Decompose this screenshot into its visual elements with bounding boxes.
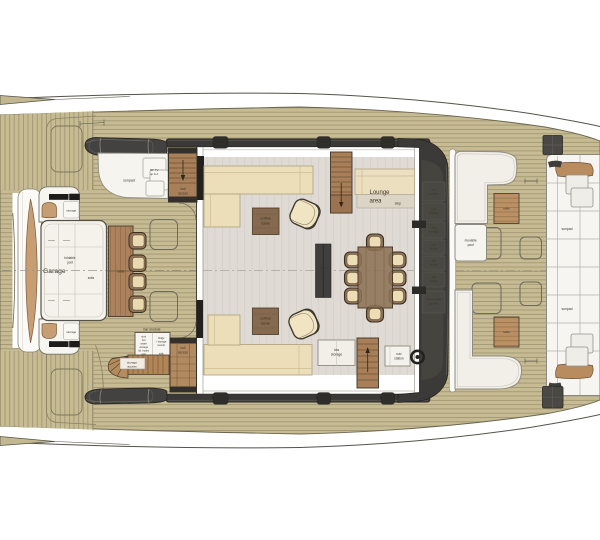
svg-text:movable: movable (465, 239, 477, 243)
svg-text:lid. hydra: lid. hydra (138, 349, 149, 353)
svg-text:locker: locker (430, 263, 438, 267)
svg-text:/ storage: / storage (156, 340, 167, 344)
svg-text:part: part (67, 261, 73, 265)
svg-text:table: table (118, 270, 125, 274)
svg-text:up & d.: up & d. (150, 172, 159, 176)
svg-text:water: water (141, 342, 147, 346)
svg-text:table: table (261, 321, 270, 326)
svg-text:storage: storage (429, 230, 439, 234)
svg-text:station: station (394, 357, 404, 361)
svg-text:locker: locker (430, 247, 438, 251)
svg-text:nav: nav (396, 352, 402, 356)
svg-text:access: access (178, 192, 188, 196)
svg-text:low: low (334, 348, 340, 352)
svg-text:access: access (178, 351, 188, 355)
svg-text:Lounge: Lounge (370, 190, 391, 196)
svg-text:bar module: bar module (144, 328, 161, 332)
svg-text:hull: hull (181, 187, 186, 191)
svg-text:sofa: sofa (88, 276, 95, 280)
svg-text:step: step (395, 202, 402, 206)
svg-text:fridge: fridge (158, 336, 165, 340)
svg-text:foldable: foldable (64, 256, 75, 260)
svg-text:area: area (370, 199, 383, 205)
svg-text:storage: storage (331, 353, 342, 357)
svg-text:Garage: Garage (43, 268, 66, 275)
svg-text:storage: storage (139, 345, 148, 349)
svg-text:access: access (429, 302, 439, 306)
svg-text:fridge: fridge (430, 279, 438, 283)
svg-text:table: table (503, 207, 510, 211)
svg-text:storage: storage (429, 192, 439, 196)
svg-text:hull: hull (181, 346, 186, 350)
svg-text:sink: sink (141, 335, 146, 339)
svg-text:storage: storage (429, 211, 439, 215)
svg-text:icemkr: icemkr (157, 343, 165, 347)
svg-text:sunpad: sunpad (123, 179, 135, 183)
svg-text:hot: hot (142, 338, 146, 342)
svg-text:sunpad: sunpad (561, 307, 572, 311)
svg-text:table: table (503, 330, 510, 334)
svg-text:lift: lift (322, 271, 325, 275)
svg-text:storage: storage (66, 330, 76, 334)
svg-text:food terrace: food terrace (426, 297, 442, 301)
svg-text:storage: storage (66, 209, 76, 213)
svg-text:pouf: pouf (468, 243, 474, 247)
svg-text:table: table (261, 221, 270, 226)
svg-text:sunpad: sunpad (561, 227, 572, 231)
svg-text:access: access (127, 365, 137, 369)
